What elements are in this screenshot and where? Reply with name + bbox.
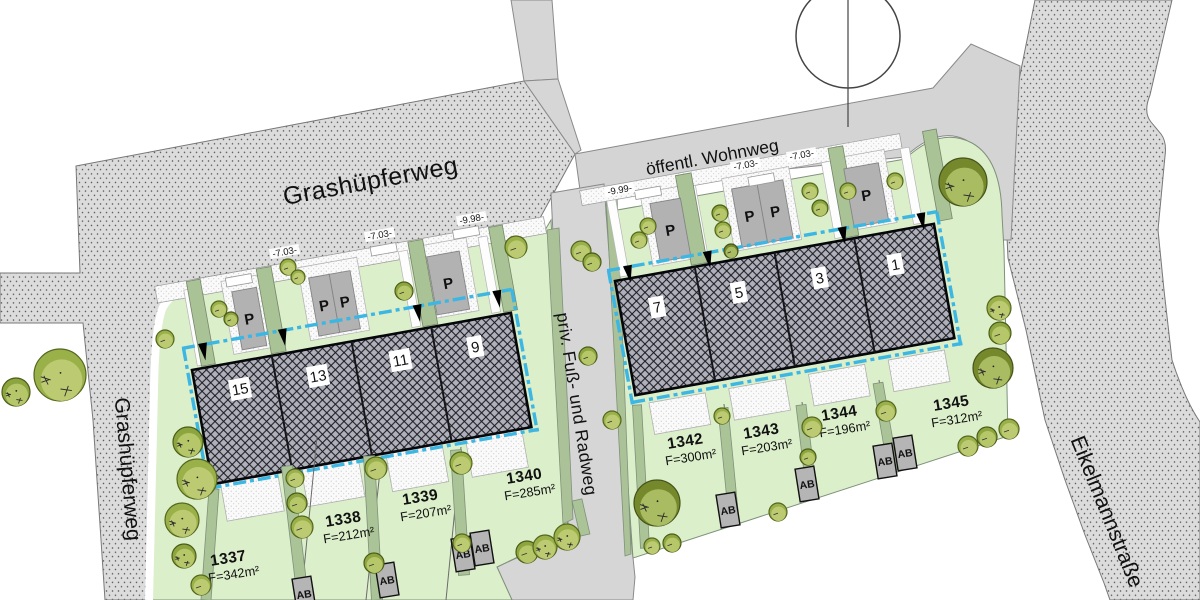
svg-text:AB: AB [720, 504, 737, 518]
svg-text:15: 15 [231, 380, 250, 400]
svg-text:13: 13 [308, 367, 327, 387]
svg-text:11: 11 [392, 351, 410, 370]
svg-text:AB: AB [379, 574, 396, 588]
svg-text:AB: AB [474, 542, 491, 556]
svg-text:AB: AB [799, 478, 816, 492]
svg-text:AB: AB [897, 447, 914, 461]
svg-text:AB: AB [877, 455, 894, 469]
svg-text:AB: AB [296, 588, 313, 600]
